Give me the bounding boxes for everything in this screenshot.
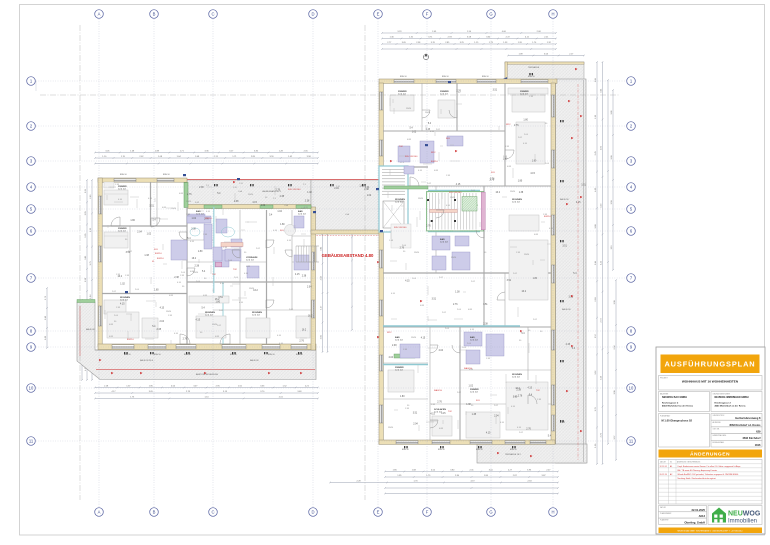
svg-text:A2: A2 [670,473,672,476]
svg-text:1.38: 1.38 [455,291,460,293]
svg-text:12.4 m2: 12.4 m2 [298,214,307,216]
svg-text:Immobilien: Immobilien [728,519,757,525]
svg-text:C: C [211,12,214,17]
svg-text:BRH 90: BRH 90 [510,449,517,451]
svg-text:BRH 90: BRH 90 [120,174,127,176]
svg-text:H: H [551,12,554,17]
svg-text:BRH 90: BRH 90 [154,354,161,356]
svg-text:2.76: 2.76 [453,304,458,306]
svg-text:2.38: 2.38 [174,277,179,279]
svg-text:ÄNDERUNGEN: ÄNDERUNGEN [690,451,730,458]
svg-text:12.4 m2: 12.4 m2 [196,214,205,216]
svg-text:BALKON: BALKON [250,359,259,362]
svg-text:12.4 m2: 12.4 m2 [520,94,529,96]
svg-text:WOHNHAUS MIT 16 WOHNEINHEITEN: WOHNHAUS MIT 16 WOHNEINHEITEN [682,380,739,384]
svg-text:DN20: DN20 [193,272,199,274]
svg-text:1.02: 1.02 [277,211,282,213]
svg-text:1.02: 1.02 [261,205,266,207]
svg-text:4.15: 4.15 [160,307,165,309]
svg-text:12.4 m2: 12.4 m2 [512,377,521,379]
svg-text:2.38: 2.38 [305,200,310,202]
svg-text:12.4 m2: 12.4 m2 [395,340,404,342]
svg-text:16.2: 16.2 [253,290,258,292]
svg-text:4.15: 4.15 [486,433,491,435]
svg-text:BALKON 28.4: BALKON 28.4 [140,359,154,362]
svg-text:1.02: 1.02 [147,234,152,236]
svg-text:12.4 m2: 12.4 m2 [434,412,443,414]
svg-text:PROJEKT: PROJEKT [660,377,668,379]
svg-text:2.76: 2.76 [518,396,523,398]
svg-text:2.04: 2.04 [334,188,339,190]
svg-text:DN20: DN20 [451,257,457,259]
svg-text:E: E [377,510,380,515]
svg-text:A: A [98,12,101,17]
svg-text:80/210: 80/210 [157,258,164,260]
svg-text:B: B [153,510,156,515]
svg-text:80/210: 80/210 [127,339,134,341]
svg-text:DN20: DN20 [425,112,431,114]
svg-text:LGA: LGA [345,213,350,216]
svg-text:BRH 90: BRH 90 [528,76,535,78]
svg-text:12.4 m2: 12.4 m2 [252,315,261,317]
svg-text:12.4 m2: 12.4 m2 [118,189,127,191]
svg-text:4.15: 4.15 [566,344,571,346]
svg-text:1.80: 1.80 [400,396,405,398]
svg-text:BAD: BAD [470,336,475,339]
svg-text:EINLAGEZAHL: EINLAGEZAHL [713,441,725,444]
svg-text:22.01.2025: 22.01.2025 [692,508,706,512]
svg-text:VORRAUM: VORRAUM [246,256,257,259]
svg-text:4.15: 4.15 [295,274,300,276]
svg-text:BAD: BAD [440,238,445,241]
svg-text:TERRASSE: TERRASSE [528,66,540,69]
svg-text:12.4 m2: 12.4 m2 [440,94,449,96]
svg-text:2.38: 2.38 [234,201,239,203]
svg-text:Gerhartsbrunnweg 8: Gerhartsbrunnweg 8 [735,416,761,420]
svg-text:TERRASSE 18.2: TERRASSE 18.2 [505,453,522,456]
svg-text:DN20: DN20 [166,311,172,313]
svg-text:2.38: 2.38 [280,196,285,198]
svg-text:F05 120/140: F05 120/140 [449,192,462,194]
svg-text:12.4 m2: 12.4 m2 [205,315,214,317]
svg-text:1.80: 1.80 [154,289,159,291]
svg-text:1.80: 1.80 [518,180,523,182]
svg-text:4563 Kirchdorf i.d. Krems: 4563 Kirchdorf i.d. Krems [729,423,761,427]
svg-text:E: E [377,12,380,17]
svg-text:BALKON: BALKON [560,198,569,201]
svg-text:Nachtrag Statik / Deckendurchb: Nachtrag Statik / Deckendurchbrüche ergä… [678,477,717,480]
svg-text:PLANINHALT: PLANINHALT [660,414,670,417]
svg-text:16.2: 16.2 [496,192,501,194]
svg-text:D: D [311,12,314,17]
svg-text:B: B [153,12,156,17]
svg-text:KATASTRALGEM.: KATASTRALGEM. [713,434,727,437]
svg-text:NEUWOG BAU GMBH · KIRCHENGASSE: NEUWOG BAU GMBH · KIRCHENGASSE 2 · 4563 … [677,529,742,532]
svg-text:BALKON: BALKON [86,328,95,331]
svg-text:2.76: 2.76 [400,247,405,249]
svg-text:3.51: 3.51 [581,185,586,187]
svg-text:1.80: 1.80 [503,158,508,160]
svg-text:Wände Bad/WC OG2 geändert; Tür: Wände Bad/WC OG2 geändert; Türbreiten an… [678,473,739,476]
svg-text:12.4 m2: 12.4 m2 [246,260,255,262]
svg-text:DN20: DN20 [171,208,177,210]
svg-text:1.02: 1.02 [367,195,372,197]
svg-text:4.15: 4.15 [252,202,257,204]
svg-text:20.12.24: 20.12.24 [660,474,667,476]
svg-text:16.2: 16.2 [308,315,313,317]
svg-text:12.4 m2: 12.4 m2 [470,392,479,394]
svg-text:12.4 m2: 12.4 m2 [395,202,404,204]
svg-text:2.04: 2.04 [439,350,444,352]
svg-text:2.04: 2.04 [560,422,565,424]
svg-text:1.38: 1.38 [472,414,477,416]
svg-text:GRUNDSTÜCK: GRUNDSTÜCK [713,414,726,417]
svg-text:90/210: 90/210 [205,218,212,220]
svg-text:Umpl. Badezimmer sowie Zimmer: Umpl. Badezimmer sowie Zimmer 2 in allen… [678,465,742,468]
svg-text:2.04: 2.04 [494,416,499,418]
svg-text:NEUWOG IMMOBILIEN GMBH: NEUWOG IMMOBILIEN GMBH [715,396,749,399]
svg-text:GRUNDEIGENTÜMER: GRUNDEIGENTÜMER [713,392,731,395]
svg-text:F: F [426,12,429,17]
svg-text:DN20: DN20 [450,197,456,199]
svg-text:DN20: DN20 [406,108,412,110]
svg-text:12.4 m2: 12.4 m2 [395,370,404,372]
svg-text:F: F [426,510,429,515]
svg-text:LGA: LGA [238,190,243,193]
svg-text:DN20: DN20 [248,194,254,196]
svg-text:DN20: DN20 [418,198,424,200]
svg-text:DN20: DN20 [524,254,530,256]
svg-text:2.38: 2.38 [199,187,204,189]
svg-text:BRH 90: BRH 90 [438,449,445,451]
svg-text:F05 120/140: F05 120/140 [288,189,301,191]
svg-text:1.02: 1.02 [469,386,474,388]
svg-text:2.04: 2.04 [413,423,418,425]
svg-text:10: 10 [629,386,634,391]
svg-text:Kirchengasse 2: Kirchengasse 2 [662,403,679,405]
svg-text:2.04: 2.04 [160,321,165,323]
svg-text:4592 Kirchdorf: 4592 Kirchdorf [742,436,760,440]
svg-text:2.04: 2.04 [307,286,312,288]
svg-text:DN20: DN20 [414,252,420,254]
svg-text:1.02: 1.02 [412,132,417,134]
svg-text:11: 11 [629,439,634,444]
svg-text:ABSTURZSICHERUNG: ABSTURZSICHERUNG [196,373,219,376]
svg-text:4.15: 4.15 [421,338,426,340]
svg-text:2.38: 2.38 [516,389,521,391]
svg-text:AUSFÜHRUNGSPLAN: AUSFÜHRUNGSPLAN [664,359,755,368]
svg-text:BH / TB sowie El.-Planung; Anp: BH / TB sowie El.-Planung; Anpassung Fen… [678,469,718,472]
svg-text:4563 Micheldorf an der Krems: 4563 Micheldorf an der Krems [662,404,694,407]
svg-text:GST. NR.: GST. NR. [713,429,721,431]
svg-text:16.2: 16.2 [522,291,527,293]
svg-text:1.80: 1.80 [532,161,537,163]
svg-text:BRH 90: BRH 90 [268,354,275,356]
svg-text:RAUCH: RAUCH [434,389,442,392]
svg-text:12.4 m2: 12.4 m2 [120,300,129,302]
svg-text:M 1:50 Obergeschoss 02: M 1:50 Obergeschoss 02 [662,419,693,423]
svg-text:2.76: 2.76 [437,402,442,404]
svg-text:BAD: BAD [196,210,201,213]
svg-text:3.51: 3.51 [432,299,437,301]
svg-text:2.76: 2.76 [183,339,188,341]
svg-text:1.02: 1.02 [120,284,125,286]
svg-text:1.80: 1.80 [523,119,528,121]
svg-text:A: A [98,510,101,515]
svg-text:GEBÄUDEABSTAND 4.80: GEBÄUDEABSTAND 4.80 [322,253,374,258]
svg-text:3.51: 3.51 [483,304,488,306]
svg-text:2.04: 2.04 [389,357,394,359]
svg-text:W12: W12 [431,152,436,154]
svg-text:1.80: 1.80 [216,302,221,304]
svg-text:3.51: 3.51 [562,245,567,247]
svg-text:Kirchengasse 2: Kirchengasse 2 [715,403,732,405]
svg-text:BALKON: BALKON [562,308,571,311]
svg-text:3.51: 3.51 [569,297,574,299]
svg-text:ADRESSE: ADRESSE [713,421,722,424]
svg-text:1.38: 1.38 [144,255,149,257]
svg-text:BAD: BAD [298,210,303,213]
svg-text:16.2: 16.2 [215,299,220,301]
svg-text:1816: 1816 [755,443,761,447]
svg-text:2.38: 2.38 [191,229,196,231]
svg-text:G: G [489,510,492,515]
svg-text:A013: A013 [699,514,706,518]
svg-text:4.15: 4.15 [120,304,125,306]
svg-text:2.38: 2.38 [483,323,488,325]
svg-text:BRH 90: BRH 90 [163,174,170,176]
svg-text:12.4 m2: 12.4 m2 [440,242,449,244]
svg-text:G: G [489,12,492,17]
svg-text:80/210: 80/210 [155,253,162,255]
svg-text:2.04: 2.04 [137,231,142,233]
svg-text:DN20: DN20 [249,288,255,290]
svg-text:BRH 90: BRH 90 [442,76,449,78]
svg-text:F05 120/140: F05 120/140 [394,227,407,229]
svg-text:2.38: 2.38 [302,275,307,277]
svg-text:DN20: DN20 [388,427,394,429]
svg-text:3.51: 3.51 [493,90,498,92]
svg-text:3.51: 3.51 [507,280,512,282]
svg-text:D: D [311,510,314,515]
svg-text:BRH 90: BRH 90 [476,449,483,451]
svg-text:80/210: 80/210 [544,216,551,218]
svg-text:4.15: 4.15 [430,414,435,416]
svg-text:16.2: 16.2 [192,258,197,260]
svg-text:10: 10 [29,386,34,391]
svg-text:BAUHERR: BAUHERR [660,392,669,395]
svg-text:SCHLAFEN: SCHLAFEN [434,408,446,411]
svg-text:DN20: DN20 [411,337,417,339]
svg-text:KZ: KZ [670,462,672,464]
svg-text:4.15: 4.15 [405,281,410,283]
svg-text:NEUWOG: NEUWOG [728,511,761,518]
svg-text:3.51: 3.51 [413,413,418,415]
svg-text:2.38: 2.38 [195,266,200,268]
svg-text:3.51: 3.51 [218,297,223,299]
svg-text:2.76: 2.76 [299,340,304,342]
svg-text:11: 11 [29,439,34,444]
svg-text:629: 629 [756,430,761,434]
svg-text:1.80: 1.80 [280,224,285,226]
svg-text:C: C [211,510,214,515]
svg-text:1.02: 1.02 [192,218,197,220]
svg-text:F05 120/140: F05 120/140 [405,156,418,158]
svg-text:BRH 90: BRH 90 [482,76,489,78]
svg-text:LAUBENGANG 42.1: LAUBENGANG 42.1 [262,190,282,193]
svg-text:12.11.24: 12.11.24 [660,466,667,468]
svg-text:W12: W12 [387,332,392,334]
svg-text:2.38: 2.38 [392,345,397,347]
svg-text:4.15: 4.15 [196,319,201,321]
svg-text:BRH 90: BRH 90 [402,449,409,451]
svg-text:A1: A1 [670,465,672,468]
svg-text:1.02: 1.02 [307,192,312,194]
svg-text:2.76: 2.76 [490,179,495,181]
svg-text:H: H [551,510,554,515]
svg-text:1.80: 1.80 [198,251,203,253]
svg-text:12.4 m2: 12.4 m2 [470,340,479,342]
svg-text:NEUWOG BAU GMBH: NEUWOG BAU GMBH [662,396,687,399]
svg-text:RAUCH: RAUCH [464,367,472,370]
svg-text:DN20: DN20 [186,201,192,203]
svg-text:DN20: DN20 [510,191,516,193]
svg-text:2.76: 2.76 [526,429,531,431]
svg-text:BAD: BAD [395,336,400,339]
svg-text:4.15: 4.15 [576,202,581,204]
svg-text:12.4 m2: 12.4 m2 [512,202,521,204]
svg-text:4.15: 4.15 [530,173,535,175]
svg-text:12.4 m2: 12.4 m2 [398,94,407,96]
svg-text:1.38: 1.38 [519,192,524,194]
svg-text:LGA: LGA [284,204,289,207]
svg-text:2.76: 2.76 [187,194,192,196]
svg-text:Oberling. GmbH: Oberling. GmbH [684,520,705,524]
svg-text:1.80: 1.80 [130,220,135,222]
svg-text:4.15: 4.15 [456,184,461,186]
svg-text:BRH 90: BRH 90 [400,76,407,78]
svg-text:4563 Micheldorf an der Krems: 4563 Micheldorf an der Krems [715,404,747,407]
